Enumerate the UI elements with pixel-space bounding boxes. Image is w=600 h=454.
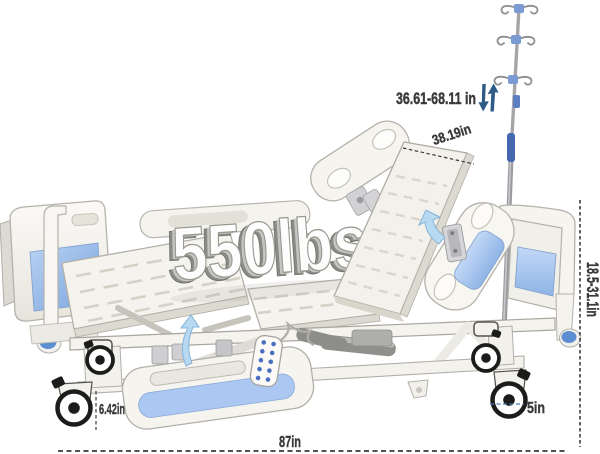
svg-text:5in: 5in — [527, 400, 545, 417]
svg-text:6.42in: 6.42in — [99, 401, 125, 418]
svg-text:87in: 87in — [279, 434, 301, 451]
svg-text:36.61-68.11 in: 36.61-68.11 in — [396, 89, 476, 108]
svg-text:18.5-31.1in: 18.5-31.1in — [583, 262, 600, 317]
